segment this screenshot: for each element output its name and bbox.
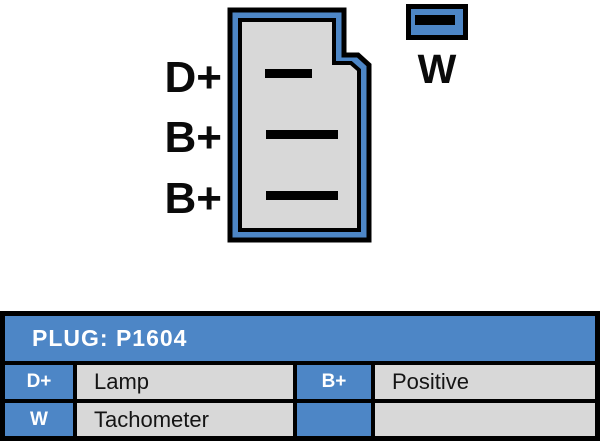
pin-bar-dplus xyxy=(265,69,312,78)
plug-table-title: PLUG: P1604 xyxy=(5,316,595,361)
w-terminal-pin xyxy=(415,15,455,25)
page: D+ B+ B+ W PLUG: P1604 D+ Lamp B+ Positi… xyxy=(0,0,600,441)
description-cell-lamp: Lamp xyxy=(77,365,293,399)
plug-table: PLUG: P1604 D+ Lamp B+ Positive W Tachom… xyxy=(0,311,600,441)
w-terminal-label: W xyxy=(418,46,457,92)
description-cell-positive: Positive xyxy=(375,365,595,399)
pin-bar-bplus-2 xyxy=(266,191,338,200)
terminal-cell-bplus: B+ xyxy=(297,365,371,399)
terminal-cell-w: W xyxy=(5,403,73,436)
terminal-cell-empty xyxy=(297,403,371,436)
pin-bar-bplus-1 xyxy=(266,130,338,139)
terminal-cell-dplus: D+ xyxy=(5,365,73,399)
description-cell-tachometer: Tachometer xyxy=(77,403,293,436)
connector-diagram: D+ B+ B+ W xyxy=(0,0,600,305)
description-cell-empty xyxy=(375,403,595,436)
pin-label-bplus-2: B+ xyxy=(165,174,222,223)
pin-label-dplus: D+ xyxy=(165,53,222,102)
pin-label-bplus-1: B+ xyxy=(165,113,222,162)
